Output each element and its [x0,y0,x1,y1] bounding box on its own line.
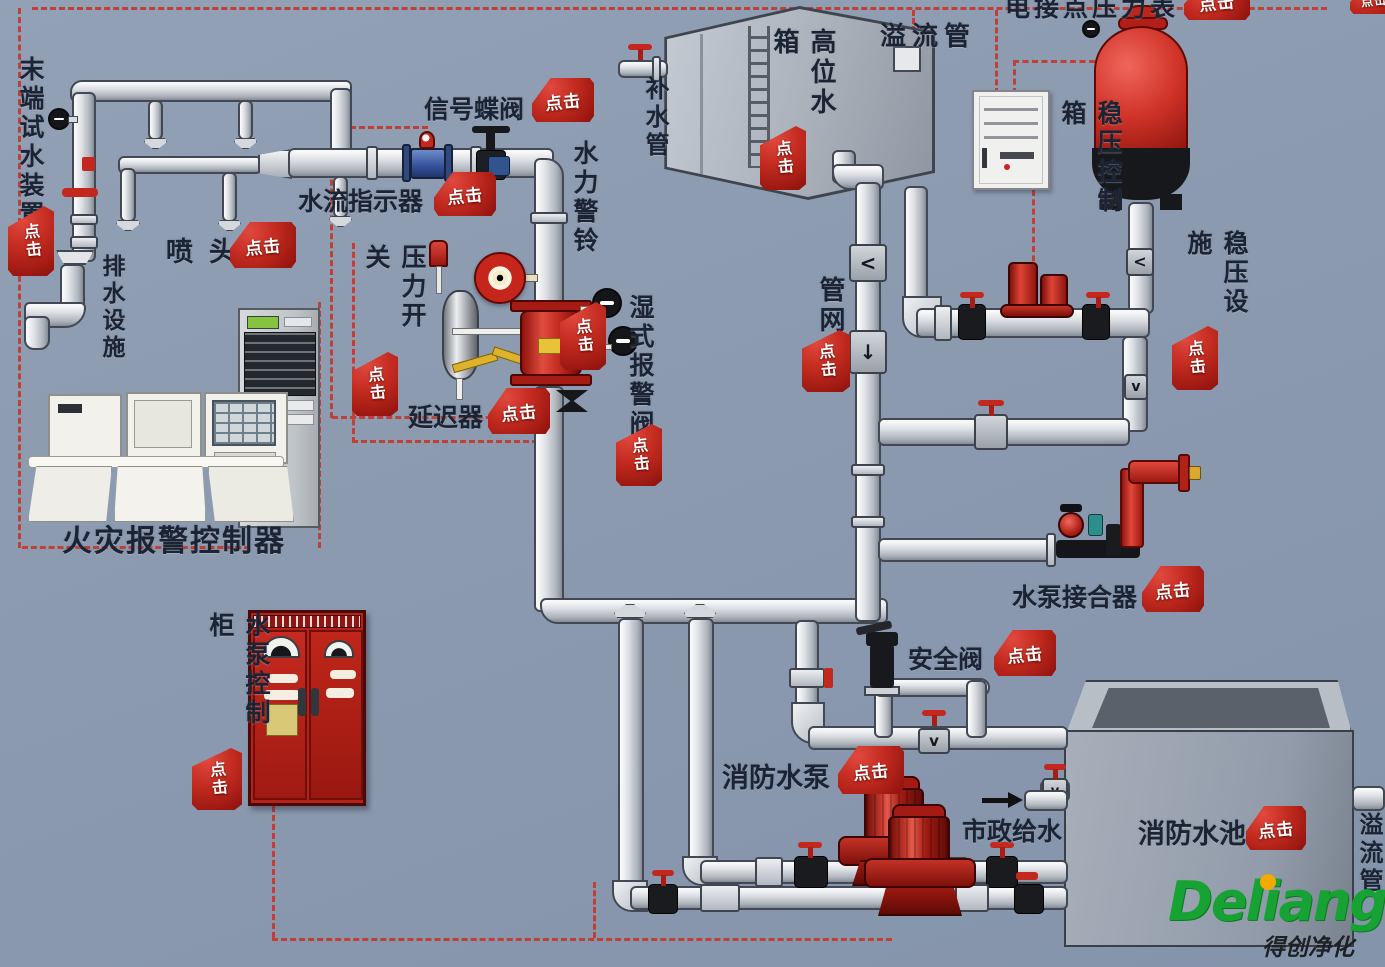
valve-handle [1086,292,1110,307]
fire-pool-opening [1092,688,1330,728]
pipe-coupling [700,884,740,912]
wet-valve-flange [510,374,592,386]
refill-valve-handle [628,44,652,60]
gate-valve [1082,304,1110,340]
valve-handle [960,292,984,307]
sprinkler-drop [120,168,136,222]
label-pressure-switch: 压力开关 [358,244,430,359]
flow-indicator-body[interactable] [410,148,446,179]
dashed-line [18,258,21,548]
check-valve-box: v [918,728,950,754]
test-valve-red [82,157,95,171]
monitor-screen[interactable] [212,400,276,446]
pipe-coupling [366,146,378,180]
pump-header-pipe [540,598,888,624]
label-fire-pump: 消防水泵 [722,756,830,795]
adapter-valve-wheel [1060,504,1082,512]
test-handle-red [62,188,98,197]
flow-arrow-box: v [1124,374,1148,400]
adapter-cap-yellow [1189,466,1201,480]
label-pump-adapter: 水泵接合器 [1012,578,1137,614]
pressure-switch-click-button[interactable]: 点击 [352,352,398,416]
dashed-line [995,10,998,94]
gate-valve [648,884,678,914]
suction-riser [618,618,644,890]
adapter-pipe [878,538,1054,562]
gauge-stub [68,116,78,123]
red-marker [1016,872,1038,880]
drain-pipe-end [24,316,50,350]
label-electric-gauge: 电接点压力表 [1005,0,1179,24]
fire-pump-click-button[interactable]: 点击 [838,746,904,794]
pipe-coupling [70,214,98,225]
adapter-flange [1046,533,1056,567]
label-drain-facility: 排水设施 [94,254,128,364]
adapter-globe-valve [1058,512,1084,538]
cabinet-panel [244,332,316,396]
label-delayer: 延迟器 [408,398,483,434]
riser-coupling [851,464,885,476]
pump-cabinet-click-button[interactable]: 点击 [192,748,242,810]
branch-pipe-tier1 [70,80,352,102]
city-water-stub [1024,790,1068,811]
logo-dot-icon [1260,874,1276,890]
safety-valve-top [866,632,898,646]
test-gauge-icon [48,108,70,130]
logo-subtext: 得创净化 [1262,928,1354,962]
jockey-flange [1000,304,1074,318]
overflow-stub-right [1352,786,1385,811]
dashed-line [352,440,538,443]
cabinet-screen [247,316,279,329]
suction-pipe-lower [630,886,1068,910]
loop-riser [966,680,987,738]
drain-funnel [56,250,94,265]
label-wet-alarm-valve: 湿式报警阀 [622,294,658,444]
control-box-led [1004,164,1010,170]
gate-valve [986,856,1018,888]
cabinet-text-strip [284,317,312,327]
dashed-line [1013,60,1095,63]
safety-valve-click-button[interactable]: 点击 [994,630,1056,676]
brand-logo: Deliang 得创净化 [1168,870,1378,960]
pipe-coupling [755,857,783,887]
dashed-line [272,806,275,938]
sprinkler-drop [148,100,163,140]
label-alarm-controller: 火灾报警控制器 [62,516,286,560]
suction-riser [688,618,714,866]
city-water-arrow-bar [982,798,1010,803]
sprinkler-head-icon[interactable] [116,220,140,231]
sprinkler-head-icon[interactable] [234,138,257,149]
door-handle[interactable] [298,688,306,716]
electric-gauge-click-button[interactable]: 点击 [1184,0,1250,20]
city-water-arrow-icon [1008,792,1023,808]
tank-panel-seam [700,34,703,174]
pump2-flange [864,858,976,888]
delayer-drip-pipe [456,378,463,400]
label-signal-valve: 信号蝶阀 [424,90,524,126]
valve-handle [1044,764,1066,778]
jockey-feed-pipe [904,186,928,302]
label-stabilizer-facility: 稳压设施 [1180,230,1252,332]
riser-pipe [534,158,564,310]
partial-click-button[interactable]: 点击 [1350,0,1385,14]
gate-valve [794,856,828,888]
adapter-check-valve [1088,514,1103,536]
branch-pipe-tier2 [118,156,262,174]
grooved-clamp [789,668,825,688]
sprinkler-drop [222,172,237,222]
dashed-line [593,882,596,938]
alarm-bell[interactable] [474,252,526,304]
label-city-water: 市政给水 [962,812,1062,848]
red-marker [824,668,833,688]
label-pipe-network: 管网 [812,276,849,338]
label-high-level-tank: 高位水箱 [766,28,840,140]
adapter-red-outlet [1128,460,1182,484]
dashed-line [1013,60,1016,94]
gate-valve-grey [974,414,1008,450]
adapter-stub [1106,524,1121,556]
door-button-strip [326,688,354,698]
control-box-indicators [984,102,1038,142]
pump2-base [878,886,962,916]
riser-coupling [530,212,568,224]
gate-valve [958,304,986,340]
label-refill-pipe: 补水管 [638,76,673,161]
sprinkler-drop [238,100,253,140]
flow-arrow-box: < [1126,248,1154,276]
sprinkler-head-icon[interactable] [144,138,167,149]
flow-indicator-top [419,131,435,149]
flow-arrow-box: ↓ [849,330,887,374]
signal-valve-crossbar [472,126,510,133]
riser-coupling [851,516,885,528]
gate-valve [1014,884,1044,914]
door-button-strip [330,670,356,679]
sprinkler-click-button[interactable]: 点击 [230,222,296,268]
valve-handle [798,842,822,857]
monitor-display [58,404,82,413]
label-fire-pool: 消防水池 [1138,812,1246,851]
pipe-coupling [70,236,98,249]
control-box-slot [982,148,987,168]
dashed-line [272,938,892,941]
pressure-switch-device[interactable] [429,240,448,267]
label-overflow-top: 溢流管 [880,16,976,53]
pump-adapter-click-button[interactable]: 点击 [1142,566,1204,612]
pipe-coupling [934,305,952,341]
label-safety-valve: 安全阀 [908,640,983,676]
pipe-reducer-cone [258,149,292,179]
pipe-coupling [955,884,989,912]
console-desk [28,466,112,522]
flow-arrow-box: < [849,244,887,282]
bypass-drop [795,620,819,714]
label-hydraulic-bell: 水力警铃 [566,140,602,305]
label-pump-cabinet: 水泵控制柜 [202,612,274,752]
valve-handle [652,870,674,885]
stabilizer-click-button[interactable]: 点击 [1172,326,1218,390]
label-stabilizer-box: 稳压控制箱 [1054,100,1126,240]
switch-stem [436,266,442,294]
thin-pipe [452,328,522,335]
control-box-bar [1000,152,1034,159]
label-flow-indicator: 水流指示器 [298,182,423,218]
tank-foot [1160,194,1182,210]
fire-system-diagram: v < ↓ < v [0,0,1385,967]
signal-valve-click-button[interactable]: 点击 [532,78,594,122]
console-desk [208,466,294,522]
monitor-display [134,400,192,448]
safety-valve-body[interactable] [870,644,894,688]
console-desk [114,466,206,522]
pipe-network-click-button[interactable]: 点击 [802,330,850,392]
door-handle[interactable] [311,688,319,716]
logo-wordmark: Deliang [1168,870,1385,933]
delayer-click-button[interactable]: 点击 [488,388,550,434]
valve-handle [978,400,1004,416]
valve-handle [922,710,946,726]
